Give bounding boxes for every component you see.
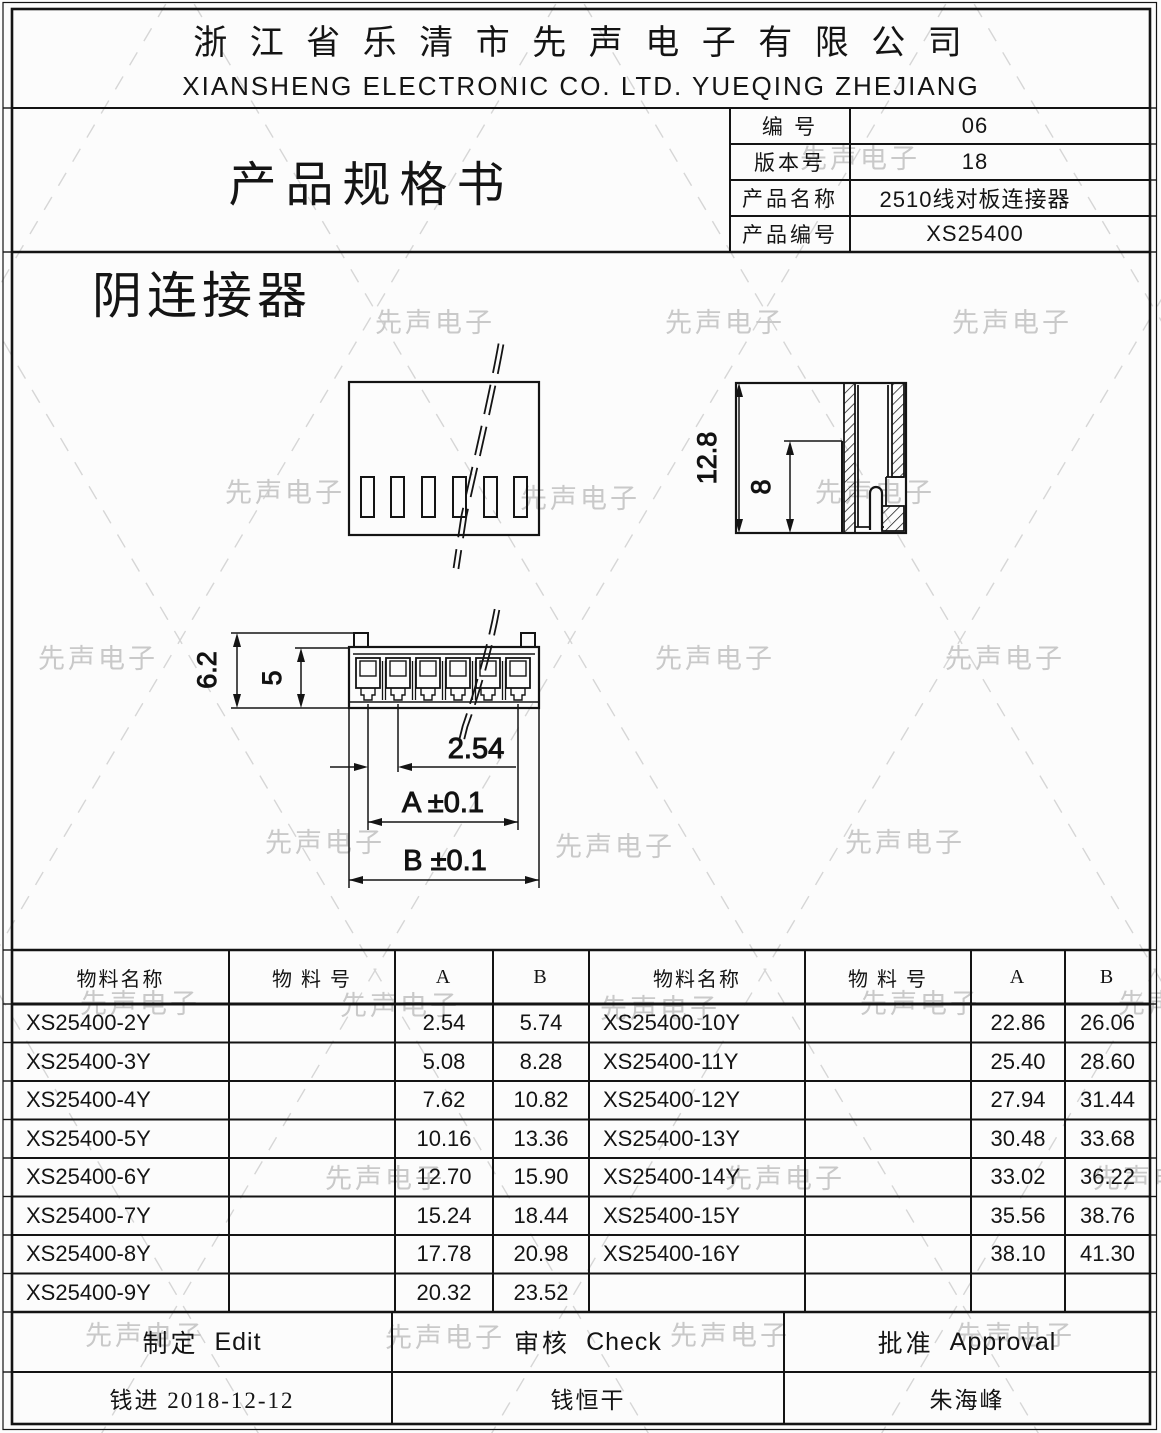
dim-b-cell: 5.74 (493, 1004, 589, 1043)
part-number-cell (805, 1120, 971, 1159)
column-header: B (493, 950, 589, 1004)
info-label: 版本号 (730, 144, 850, 180)
info-value: 18 (850, 144, 1150, 180)
dim-a-cell (971, 1274, 1065, 1313)
part-name-cell: XS25400-7Y (12, 1197, 229, 1236)
signoff-label-en: Edit (214, 1328, 261, 1357)
dim-a-cell: 2.54 (395, 1004, 493, 1043)
watermark-text: 先声电子 (225, 478, 345, 508)
dim-b-cell: 36.22 (1065, 1158, 1150, 1197)
part-name-cell: XS25400-6Y (12, 1158, 229, 1197)
watermark-text: 先声电子 (845, 828, 965, 858)
dim-inner-depth (295, 648, 349, 708)
dim-a-cell: 27.94 (971, 1081, 1065, 1120)
part-number-cell (229, 1081, 395, 1120)
section-view: 12.8 8 (692, 383, 906, 533)
dim-b-cell: 18.44 (493, 1197, 589, 1236)
signoff-checker-name: 钱恒干 (392, 1372, 784, 1424)
dim-a-cell: 38.10 (971, 1235, 1065, 1274)
dim-a-cell: 17.78 (395, 1235, 493, 1274)
dim-b-cell: 41.30 (1065, 1235, 1150, 1274)
dim-b-cell: 26.06 (1065, 1004, 1150, 1043)
signoff-label-cn: 审核 (514, 1324, 570, 1360)
part-number-cell (805, 1081, 971, 1120)
part-number-cell (229, 1197, 395, 1236)
info-label: 产品编号 (730, 216, 850, 252)
watermark-text: 先声电子 (555, 832, 675, 862)
dim-b-cell: 13.36 (493, 1120, 589, 1159)
watermark-text: 先声电子 (38, 644, 158, 674)
signoff-edit-label: 制定 Edit (12, 1312, 392, 1372)
dim-b-cell: 10.82 (493, 1081, 589, 1120)
signoff-approval-label: 批准 Approval (784, 1312, 1150, 1372)
dim-b-cell: 23.52 (493, 1274, 589, 1313)
part-number-cell (229, 1120, 395, 1159)
dim-label-pitch: 2.54 (448, 733, 504, 765)
watermark-text: 先声电子 (665, 308, 785, 338)
dim-a-cell: 22.86 (971, 1004, 1065, 1043)
signoff-label-en: Approval (950, 1328, 1057, 1357)
dim-b-cell (1065, 1274, 1150, 1313)
info-value: 06 (850, 108, 1150, 144)
column-header: 物 料 号 (229, 950, 395, 1004)
part-name-cell: XS25400-16Y (589, 1235, 805, 1274)
document-title: 产品规格书 (12, 108, 730, 252)
signoff-label-en: Check (586, 1328, 662, 1357)
dim-a-cell: 33.02 (971, 1158, 1065, 1197)
document-info-table: 编 号 06 版本号 18 产品名称 2510线对板连接器 产品编号 XS254… (730, 108, 1150, 252)
column-header: A (971, 950, 1065, 1004)
info-value: XS25400 (850, 216, 1150, 252)
part-number-cell (805, 1235, 971, 1274)
part-name-cell: XS25400-2Y (12, 1004, 229, 1043)
watermark-text: 先声电子 (655, 644, 775, 674)
signoff-approver-name: 朱海峰 (784, 1372, 1150, 1424)
dim-a-cell: 7.62 (395, 1081, 493, 1120)
dim-a-cell: 5.08 (395, 1043, 493, 1082)
dim-a-cell: 35.56 (971, 1197, 1065, 1236)
company-header: 浙 江 省 乐 清 市 先 声 电 子 有 限 公 司 XIANSHENG EL… (12, 9, 1150, 108)
part-name-cell: XS25400-8Y (12, 1235, 229, 1274)
part-number-cell (805, 1274, 971, 1313)
front-view (349, 344, 539, 570)
dim-b-cell: 33.68 (1065, 1120, 1150, 1159)
part-name-cell: XS25400-12Y (589, 1081, 805, 1120)
dim-label-b: B ±0.1 (403, 845, 487, 877)
dim-b-cell: 28.60 (1065, 1043, 1150, 1082)
spec-sheet-page: 先声电子 先声电子 先声电子 先声电子 先声电子 先声电子 先声电子 先声电子 … (0, 0, 1161, 1433)
part-name-cell: XS25400-11Y (589, 1043, 805, 1082)
info-label: 产品名称 (730, 180, 850, 216)
column-header: B (1065, 950, 1150, 1004)
dim-a-cell: 25.40 (971, 1043, 1065, 1082)
dim-label-total-depth: 6.2 (192, 651, 222, 689)
dim-b-cell: 31.44 (1065, 1081, 1150, 1120)
dim-a-cell: 10.16 (395, 1120, 493, 1159)
dim-b-cell: 20.98 (493, 1235, 589, 1274)
dim-a-cell: 15.24 (395, 1197, 493, 1236)
company-name-cn: 浙 江 省 乐 清 市 先 声 电 子 有 限 公 司 (193, 15, 969, 64)
part-number-cell (229, 1004, 395, 1043)
column-header: 物料名称 (12, 950, 229, 1004)
watermark-text: 先声电子 (375, 308, 495, 338)
dim-label-a: A ±0.1 (402, 787, 484, 819)
part-number-cell (229, 1274, 395, 1313)
dim-a-cell: 20.32 (395, 1274, 493, 1313)
part-number-cell (229, 1235, 395, 1274)
drawing-section-title: 阴连接器 (92, 256, 312, 328)
watermark-text: 先声电子 (945, 644, 1065, 674)
part-name-cell: XS25400-15Y (589, 1197, 805, 1236)
part-number-cell (229, 1158, 395, 1197)
dim-total-depth (231, 633, 354, 708)
info-label: 编 号 (730, 108, 850, 144)
signoff-block: 制定 Edit 审核 Check 批准 Approval 钱进 2018-12-… (12, 1312, 1150, 1424)
info-value: 2510线对板连接器 (850, 180, 1150, 216)
part-name-cell: XS25400-10Y (589, 1004, 805, 1043)
part-name-cell: XS25400-5Y (12, 1120, 229, 1159)
part-number-cell (805, 1197, 971, 1236)
watermark-text: 先声电子 (952, 308, 1072, 338)
dim-label-inner-depth: 5 (257, 670, 287, 685)
dim-a-cell: 30.48 (971, 1120, 1065, 1159)
dim-b-cell: 38.76 (1065, 1197, 1150, 1236)
column-header: 物 料 号 (805, 950, 971, 1004)
terminal-pin (870, 487, 882, 530)
part-number-cell (229, 1043, 395, 1082)
section-break-line (458, 609, 500, 747)
column-header: A (395, 950, 493, 1004)
part-name-cell: XS25400-9Y (12, 1274, 229, 1313)
dim-label-total-height: 12.8 (692, 432, 722, 485)
company-name-en: XIANSHENG ELECTRONIC CO. LTD. YUEQING ZH… (182, 71, 979, 102)
part-number-cell (805, 1043, 971, 1082)
dim-b-cell: 8.28 (493, 1043, 589, 1082)
signoff-label-cn: 制定 (142, 1324, 198, 1360)
part-name-cell: XS25400-4Y (12, 1081, 229, 1120)
column-header: 物料名称 (589, 950, 805, 1004)
part-number-cell (805, 1004, 971, 1043)
dim-label-inner-height: 8 (746, 479, 776, 494)
part-name-cell (589, 1274, 805, 1313)
watermark-text: 先声电子 (265, 828, 385, 858)
part-number-cell (805, 1158, 971, 1197)
signoff-editor-name: 钱进 2018-12-12 (12, 1372, 392, 1424)
signoff-check-label: 审核 Check (392, 1312, 784, 1372)
parts-table: 物料名称 物 料 号 A B 物料名称 物 料 号 A B XS25400-2Y… (12, 950, 1150, 1312)
part-name-cell: XS25400-14Y (589, 1158, 805, 1197)
part-name-cell: XS25400-13Y (589, 1120, 805, 1159)
signoff-label-cn: 批准 (878, 1324, 934, 1360)
part-name-cell: XS25400-3Y (12, 1043, 229, 1082)
dim-a-cell: 12.70 (395, 1158, 493, 1197)
dim-b-cell: 15.90 (493, 1158, 589, 1197)
